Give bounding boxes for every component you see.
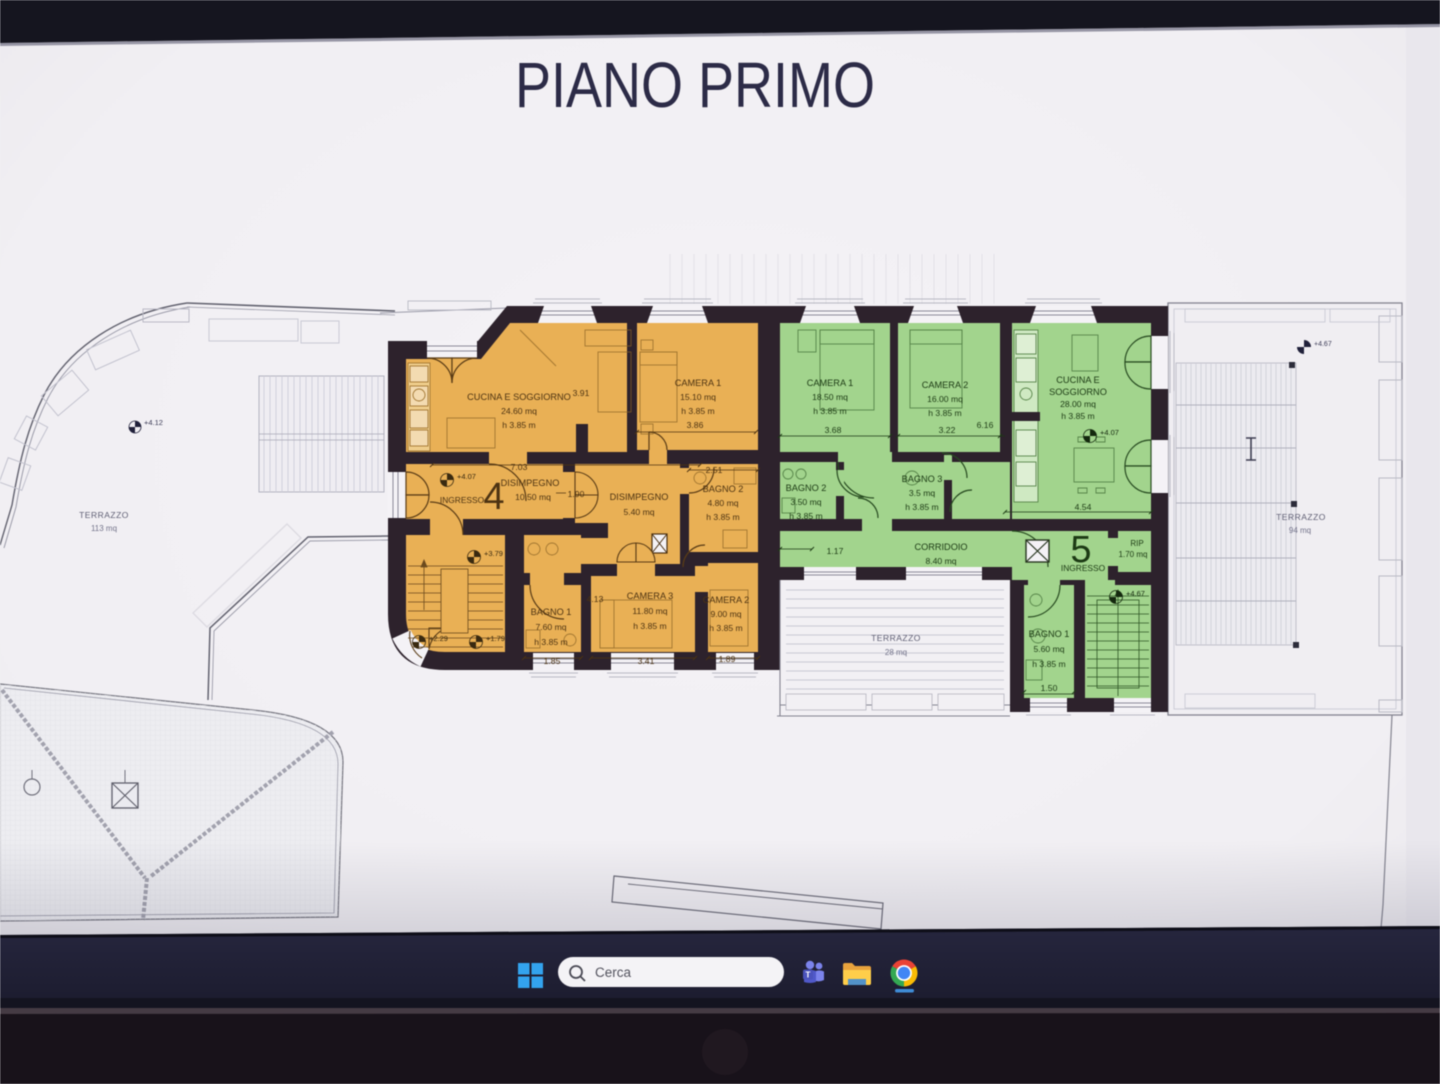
- svg-text:+1.79: +1.79: [486, 634, 505, 643]
- svg-text:18.50 mq: 18.50 mq: [812, 392, 848, 402]
- svg-text:16.00 mq: 16.00 mq: [927, 394, 963, 404]
- svg-text:INGRESSO: INGRESSO: [440, 495, 485, 505]
- svg-text:3.41: 3.41: [638, 656, 655, 666]
- svg-text:CAMERA 1: CAMERA 1: [675, 378, 721, 388]
- svg-text:PIANO PRIMO: PIANO PRIMO: [515, 49, 875, 121]
- svg-text:1.70 mq: 1.70 mq: [1119, 550, 1148, 559]
- svg-text:DISIMPEGNO: DISIMPEGNO: [610, 492, 669, 502]
- svg-text:h 3.85 m: h 3.85 m: [633, 621, 666, 631]
- svg-text:3.68: 3.68: [825, 425, 842, 435]
- svg-text:3.22: 3.22: [939, 425, 956, 435]
- svg-text:4.80 mq: 4.80 mq: [707, 498, 738, 508]
- svg-text:1.90: 1.90: [568, 489, 585, 499]
- svg-text:h 3.85 m: h 3.85 m: [1061, 411, 1094, 421]
- svg-text:h 3.85 m: h 3.85 m: [789, 511, 822, 521]
- svg-text:h 3.85 m: h 3.85 m: [813, 406, 846, 416]
- svg-text:3.5 mq: 3.5 mq: [909, 488, 935, 498]
- svg-text:7.60 mq: 7.60 mq: [535, 622, 566, 632]
- svg-text:6.16: 6.16: [977, 420, 994, 430]
- svg-text:1.85: 1.85: [544, 656, 561, 666]
- svg-text:113 mq: 113 mq: [91, 524, 117, 533]
- svg-text:TERRAZZO: TERRAZZO: [79, 510, 129, 520]
- svg-text:+4.07: +4.07: [457, 472, 476, 481]
- svg-text:Cerca: Cerca: [595, 965, 632, 980]
- svg-text:BAGNO 1: BAGNO 1: [1029, 629, 1070, 639]
- svg-text:h 3.85 m: h 3.85 m: [905, 502, 938, 512]
- svg-text:+3.79: +3.79: [484, 549, 503, 558]
- svg-text:+4.12: +4.12: [144, 418, 163, 427]
- svg-text:4.13: 4.13: [587, 594, 604, 604]
- svg-text:+2.29: +2.29: [429, 634, 448, 643]
- svg-text:9.00 mq: 9.00 mq: [710, 609, 741, 619]
- svg-text:h 3.85 m: h 3.85 m: [502, 420, 535, 430]
- svg-text:28 mq: 28 mq: [885, 648, 907, 657]
- svg-text:8.40 mq: 8.40 mq: [925, 556, 956, 566]
- svg-text:7.03: 7.03: [511, 462, 528, 472]
- svg-text:5.40 mq: 5.40 mq: [623, 507, 654, 517]
- svg-text:h 3.85 m: h 3.85 m: [928, 408, 961, 418]
- svg-text:4: 4: [483, 476, 504, 518]
- svg-text:CUCINA E: CUCINA E: [1056, 375, 1099, 385]
- svg-text:15.10 mq: 15.10 mq: [680, 392, 716, 402]
- svg-text:BAGNO 2: BAGNO 2: [786, 483, 827, 493]
- svg-text:BAGNO 1: BAGNO 1: [531, 607, 572, 617]
- svg-text:1.17: 1.17: [827, 546, 844, 556]
- svg-text:CAMERA 3: CAMERA 3: [627, 591, 673, 601]
- svg-text:CUCINA E SOGGIORNO: CUCINA E SOGGIORNO: [467, 392, 571, 402]
- svg-text:TERRAZZO: TERRAZZO: [871, 633, 921, 643]
- svg-text:CORRIDOIO: CORRIDOIO: [914, 542, 967, 552]
- svg-text:5: 5: [1070, 529, 1091, 571]
- svg-text:1.89: 1.89: [719, 654, 736, 664]
- svg-text:28.00 mq: 28.00 mq: [1060, 399, 1096, 409]
- svg-text:3.86: 3.86: [687, 420, 704, 430]
- svg-text:1.50: 1.50: [1041, 683, 1058, 693]
- svg-text:4.54: 4.54: [1075, 502, 1092, 512]
- svg-text:RIP: RIP: [1130, 539, 1143, 548]
- svg-text:CAMERA 2: CAMERA 2: [703, 595, 749, 605]
- svg-text:11.80 mq: 11.80 mq: [632, 606, 667, 616]
- svg-text:h 3.85 m: h 3.85 m: [534, 637, 567, 647]
- svg-text:h 3.85 m: h 3.85 m: [1032, 659, 1065, 669]
- svg-text:h 3.85 m: h 3.85 m: [709, 623, 742, 633]
- svg-text:+4.67: +4.67: [1314, 341, 1332, 348]
- svg-text:SOGGIORNO: SOGGIORNO: [1049, 387, 1107, 397]
- svg-text:BAGNO 2: BAGNO 2: [703, 484, 744, 494]
- svg-text:h 3.85 m: h 3.85 m: [681, 406, 714, 416]
- svg-text:+4.67: +4.67: [1126, 589, 1145, 598]
- svg-text:CAMERA 1: CAMERA 1: [807, 378, 853, 388]
- svg-text:3.91: 3.91: [573, 388, 590, 398]
- svg-text:CAMERA 2: CAMERA 2: [922, 380, 968, 390]
- svg-text:5.60 mq: 5.60 mq: [1033, 644, 1064, 654]
- svg-text:24.60 mq: 24.60 mq: [501, 406, 537, 416]
- svg-text:T: T: [806, 971, 811, 980]
- svg-text:BAGNO 3: BAGNO 3: [902, 474, 943, 484]
- svg-text:+4.07: +4.07: [1100, 428, 1119, 437]
- svg-text:h 3.85 m: h 3.85 m: [706, 512, 739, 522]
- svg-text:TERRAZZO: TERRAZZO: [1276, 512, 1326, 522]
- svg-text:DISIMPEGNO: DISIMPEGNO: [501, 478, 560, 488]
- svg-text:94 mq: 94 mq: [1289, 526, 1311, 535]
- svg-text:10.50 mq: 10.50 mq: [515, 492, 551, 502]
- svg-text:3.50 mq: 3.50 mq: [790, 497, 821, 507]
